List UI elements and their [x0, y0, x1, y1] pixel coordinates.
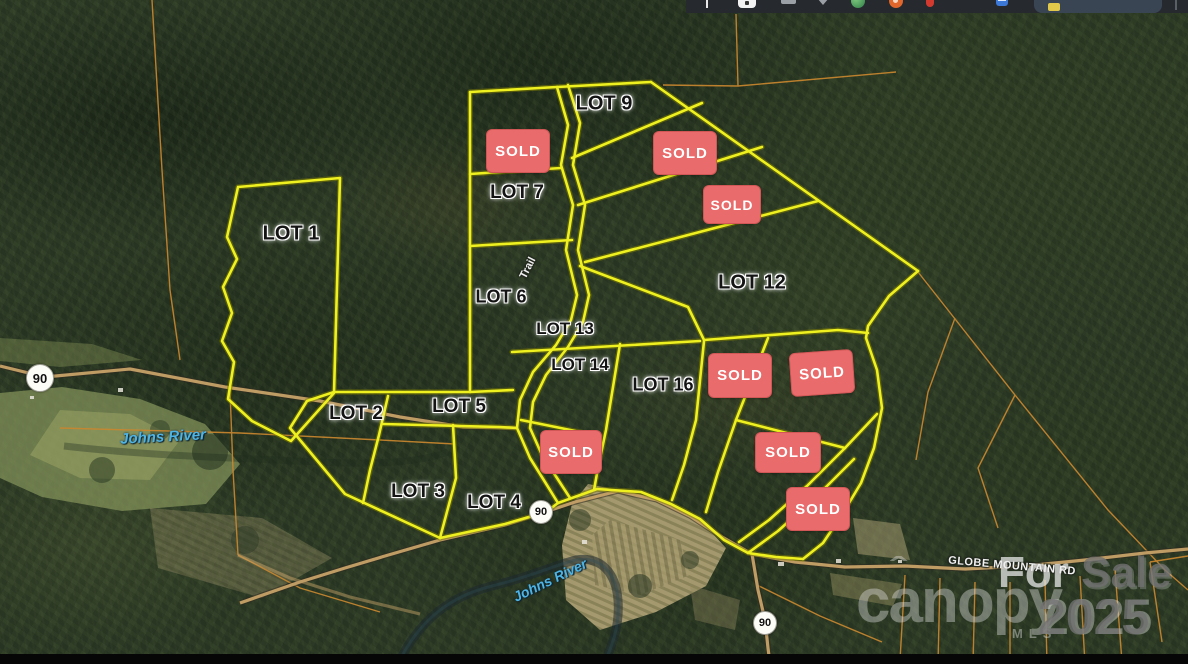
- text-cursor-icon[interactable]: [706, 0, 708, 8]
- extension-icon[interactable]: [738, 0, 756, 8]
- lot-label-7: LOT 7: [490, 182, 544, 204]
- lot-label-4: LOT 4: [467, 492, 521, 514]
- lot-label-13: LOT 13: [536, 319, 594, 339]
- lot-label-14: LOT 14: [551, 355, 609, 375]
- lot-label-16: LOT 16: [632, 375, 693, 396]
- active-tab[interactable]: [1034, 0, 1162, 13]
- lot-label-9: LOT 9: [576, 93, 633, 116]
- parcel-map-photo[interactable]: LOT 1 LOT 2 LOT 3 LOT 4 LOT 5 LOT 6 LOT …: [0, 0, 1188, 664]
- sold-badge: SOLD: [703, 185, 761, 224]
- chevron-down-icon[interactable]: [817, 0, 829, 5]
- active-tab-folder-icon: [1048, 3, 1060, 11]
- browser-toolbar: [686, 0, 1188, 13]
- lot-label-2: LOT 2: [329, 403, 383, 425]
- pin-icon[interactable]: [926, 0, 934, 7]
- globe-icon[interactable]: [851, 0, 865, 8]
- window-edge-divider: [1175, 0, 1177, 10]
- lot-label-3: LOT 3: [391, 481, 445, 503]
- sold-badge: SOLD: [786, 487, 850, 531]
- sold-badge: SOLD: [708, 353, 772, 398]
- lot-label-12: LOT 12: [718, 272, 786, 295]
- cast-icon[interactable]: [781, 0, 796, 4]
- bottom-letterbox-bar: [0, 654, 1188, 664]
- route-90-shield: 90: [26, 364, 54, 392]
- sold-badge: SOLD: [653, 131, 717, 175]
- lot-label-5: LOT 5: [432, 396, 486, 418]
- year-watermark: 2025: [1038, 588, 1149, 646]
- reddit-icon[interactable]: [889, 0, 903, 8]
- lot-label-1: LOT 1: [263, 223, 320, 246]
- route-90-shield: 90: [529, 500, 553, 524]
- sold-badge: SOLD: [755, 432, 821, 473]
- sold-badge: SOLD: [789, 349, 856, 397]
- lot-label-6: LOT 6: [475, 287, 526, 308]
- sold-badge: SOLD: [486, 129, 550, 173]
- canopy-tilde-mark: ˆ: [890, 552, 906, 586]
- bookmarks-icon[interactable]: [996, 0, 1008, 6]
- sold-badge: SOLD: [540, 430, 602, 474]
- route-90-shield: 90: [753, 611, 777, 635]
